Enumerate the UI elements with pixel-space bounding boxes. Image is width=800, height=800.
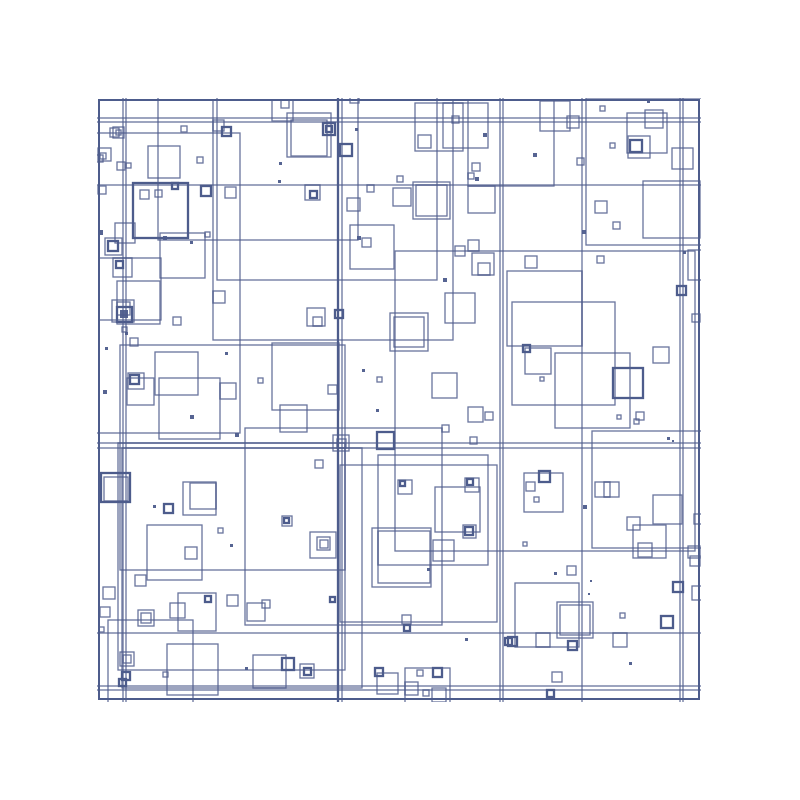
generative-squares-canvas (0, 0, 800, 800)
artwork-page (0, 0, 800, 800)
